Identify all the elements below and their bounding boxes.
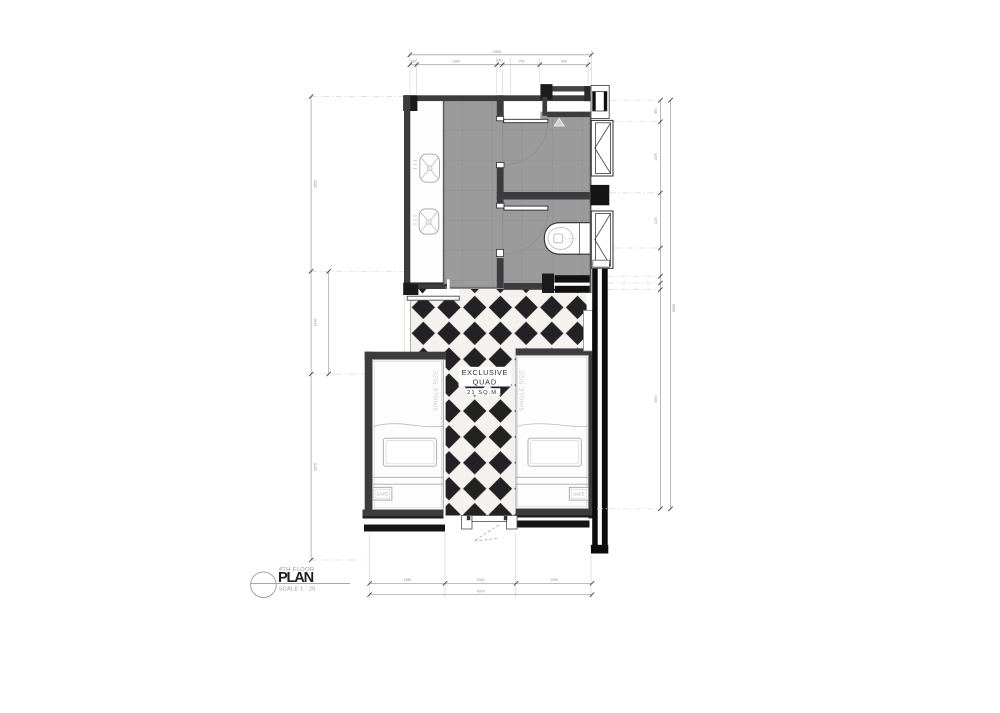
svg-text:SINGLE SIZE: SINGLE SIZE xyxy=(434,370,440,412)
svg-text:EXCLUSIVE: EXCLUSIVE xyxy=(462,368,508,377)
svg-text:21 SQ.M.: 21 SQ.M. xyxy=(467,390,499,396)
svg-text:SCALE 1 : 25: SCALE 1 : 25 xyxy=(279,586,316,592)
svg-text:1380: 1380 xyxy=(403,578,411,582)
svg-text:1150: 1150 xyxy=(654,217,658,224)
svg-text:8500: 8500 xyxy=(672,304,676,312)
svg-text:1300: 1300 xyxy=(477,578,485,582)
svg-text:450: 450 xyxy=(654,108,658,114)
svg-text:240: 240 xyxy=(497,59,503,63)
svg-text:SAFE: SAFE xyxy=(573,491,585,496)
svg-text:1390: 1390 xyxy=(550,578,558,582)
svg-text:3400: 3400 xyxy=(493,50,501,54)
svg-text:1475: 1475 xyxy=(654,153,658,161)
svg-text:SINGLE SIZE: SINGLE SIZE xyxy=(520,370,526,412)
svg-text:SAFE: SAFE xyxy=(377,491,389,496)
svg-text:750: 750 xyxy=(519,59,525,63)
svg-text:1950: 1950 xyxy=(313,180,317,188)
svg-text:1300: 1300 xyxy=(452,59,460,63)
svg-text:900: 900 xyxy=(561,59,567,63)
svg-text:QUAD: QUAD xyxy=(473,378,497,387)
svg-text:150: 150 xyxy=(410,59,416,63)
svg-text:4550: 4550 xyxy=(654,395,658,403)
svg-text:PLAN: PLAN xyxy=(278,570,314,586)
svg-text:2075: 2075 xyxy=(313,463,317,471)
svg-text:4070: 4070 xyxy=(477,590,485,594)
svg-text:1140: 1140 xyxy=(313,319,317,327)
